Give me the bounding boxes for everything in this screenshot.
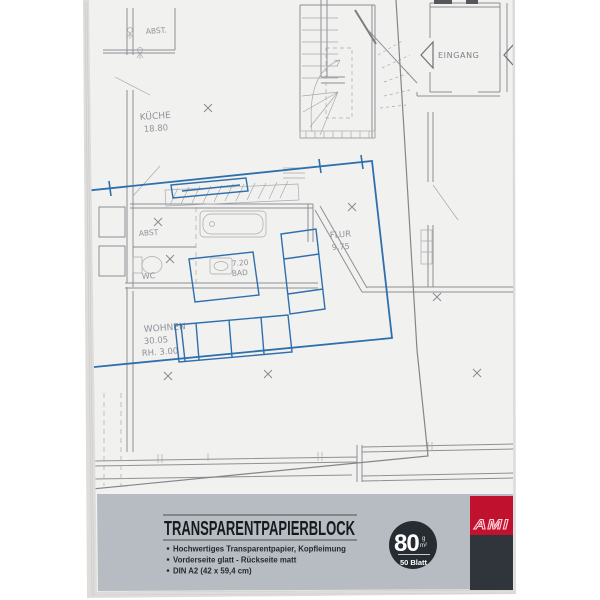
window-mark (466, 0, 478, 4)
brand-dark-block (470, 535, 513, 590)
product-title: TRANSPARENTPAPIERBLOCK (164, 518, 355, 540)
info-band: TRANSPARENTPAPIERBLOCK Hochwertiges Tran… (97, 494, 513, 591)
badge-unit-top: g (422, 536, 425, 542)
badge-sheets: 50 Blatt (400, 558, 428, 567)
feature-item: DIN A2 (42 x 59,4 cm) (173, 567, 252, 576)
badge-weight: 80 (394, 530, 419, 557)
paper-pad-scene: ABST. KÜCHE 18.80 ABST WC 7.20 BAD FLUR … (0, 0, 600, 600)
label-kitchen: KÜCHE (139, 110, 171, 123)
label-wc: WC (142, 271, 157, 281)
bullet-icon (167, 547, 170, 550)
label-bath-area: 7.20 (232, 258, 250, 268)
feature-item: Vorderseite glatt - Rückseite matt (173, 556, 297, 565)
badge-unit-bottom: m² (420, 543, 427, 549)
label-kitchen-area: 18.80 (144, 123, 169, 135)
feature-item: Hochwertiges Transparentpapier, Kopfleim… (173, 545, 346, 554)
label-entrance: EINGANG (438, 51, 479, 60)
label-hall: FLUR (330, 230, 352, 241)
product-photo: ABST. KÜCHE 18.80 ABST WC 7.20 BAD FLUR … (0, 0, 600, 600)
bullet-icon (167, 558, 170, 561)
band-background (97, 494, 513, 591)
window-mark (434, 0, 452, 4)
brand-block: AMI (470, 496, 513, 590)
weight-badge: 80 g m² 50 Blatt (389, 521, 437, 569)
label-storage: ABST (139, 228, 159, 238)
label-bath: BAD (232, 268, 249, 278)
label-hall-area: 9.75 (332, 242, 350, 252)
brand-logo: AMI (473, 517, 509, 532)
label-living-area: 30.05 (144, 335, 169, 347)
bullet-icon (167, 569, 170, 572)
label-storage-top: ABST. (146, 26, 168, 36)
